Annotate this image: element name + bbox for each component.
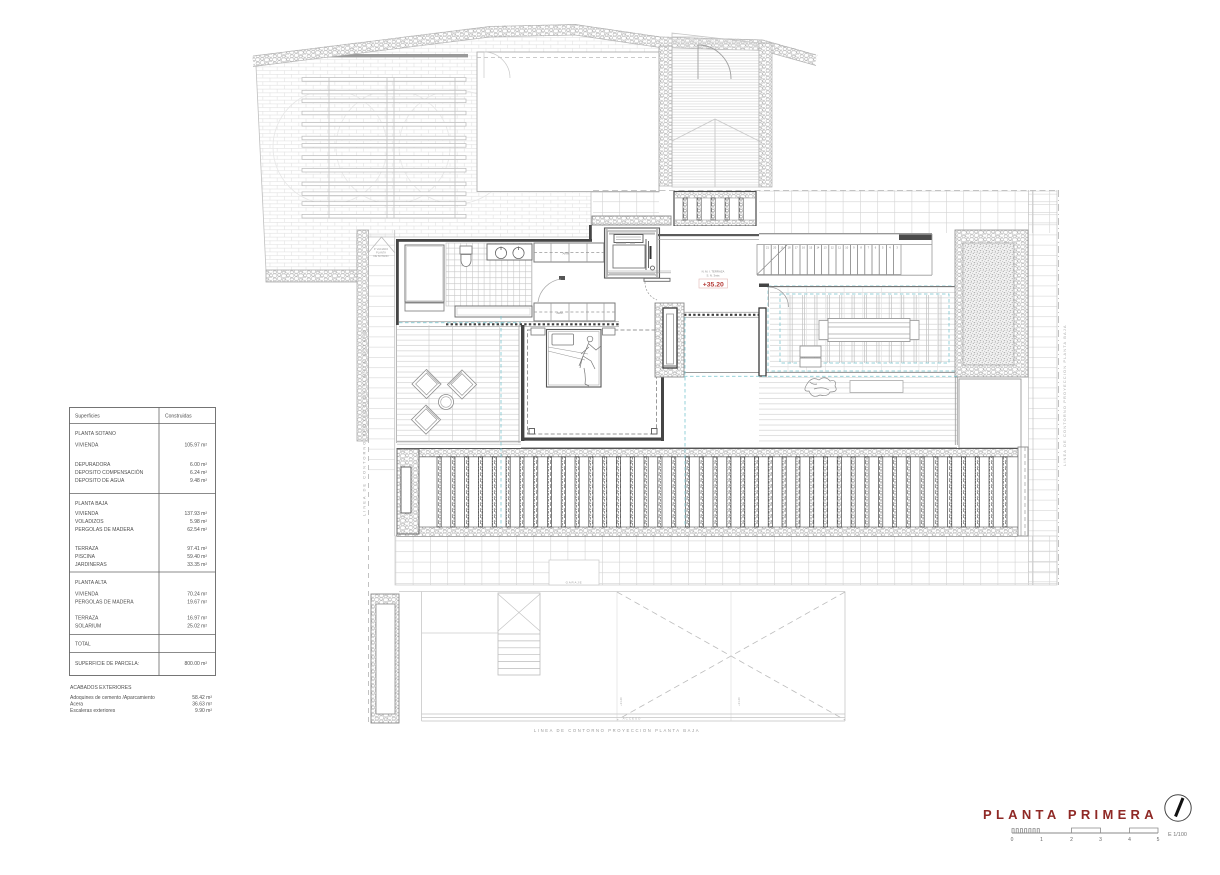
svg-text:PERGOLAS DE MADERA: PERGOLAS DE MADERA [75, 600, 134, 606]
svg-text:Superficies: Superficies [75, 414, 100, 420]
svg-text:59.40 m²: 59.40 m² [187, 554, 207, 560]
svg-text:SOLARIUM: SOLARIUM [75, 624, 101, 630]
svg-text:33.35 m²: 33.35 m² [187, 562, 207, 568]
svg-text:16.97 m²: 16.97 m² [187, 616, 207, 622]
svg-text:105.97 m²: 105.97 m² [184, 443, 207, 449]
svg-text:3: 3 [1099, 837, 1102, 843]
svg-text:Adoquines de cemento /Aparcami: Adoquines de cemento /Aparcamiento [70, 695, 155, 701]
svg-text:19.67 m²: 19.67 m² [187, 600, 207, 606]
svg-text:+31.40: +31.40 [737, 697, 741, 706]
svg-text:TERRAZA: TERRAZA [75, 616, 99, 622]
svg-text:ARM.: ARM. [563, 252, 570, 256]
svg-text:DEPOSITO COMPENSACIÓN: DEPOSITO COMPENSACIÓN [75, 469, 144, 476]
svg-text:+35.20: +35.20 [703, 281, 724, 288]
svg-text:Escaleras exteriores: Escaleras exteriores [70, 708, 116, 714]
svg-text:PLANTA ALTA: PLANTA ALTA [75, 580, 107, 586]
svg-text:0: 0 [1011, 837, 1014, 843]
svg-text:6.24 m²: 6.24 m² [190, 470, 207, 476]
svg-text:P. VACIADO: P. VACIADO [374, 247, 388, 251]
svg-text:PLANTA BAJA: PLANTA BAJA [75, 501, 108, 507]
svg-text:Acera: Acera [70, 702, 83, 708]
svg-text:70.24 m²: 70.24 m² [187, 592, 207, 598]
svg-text:800.00 m²: 800.00 m² [184, 661, 207, 667]
svg-text:PLANTA SOTANO: PLANTA SOTANO [75, 431, 116, 437]
svg-text:JARDINERAS: JARDINERAS [75, 562, 107, 568]
svg-text:1: 1 [1040, 837, 1043, 843]
svg-text:LINEA DE CONTORNO PROYECCION P: LINEA DE CONTORNO PROYECCION PLANTA BAJA [534, 728, 700, 733]
svg-text:VOLADIZOS: VOLADIZOS [75, 519, 104, 525]
svg-text:9.48 m²: 9.48 m² [190, 478, 207, 484]
svg-text:2: 2 [1070, 837, 1073, 843]
svg-text:S. N. 3mts: S. N. 3mts [706, 274, 720, 278]
svg-text:97.41 m²: 97.41 m² [187, 546, 207, 552]
svg-text:DE SOTANO: DE SOTANO [373, 254, 388, 258]
svg-text:PLANTA: PLANTA [376, 251, 386, 255]
svg-text:5.98 m²: 5.98 m² [190, 519, 207, 525]
svg-text:PISCINA: PISCINA [75, 554, 96, 560]
svg-text:DEPURADORA: DEPURADORA [75, 462, 111, 468]
svg-text:VIVIENDA: VIVIENDA [75, 511, 99, 517]
svg-text:E 1/100: E 1/100 [1168, 832, 1187, 838]
svg-text:4: 4 [1128, 837, 1131, 843]
svg-text:5: 5 [1157, 837, 1160, 843]
svg-text:PLANTA PRIMERA: PLANTA PRIMERA [983, 807, 1159, 822]
svg-text:9.90 m²: 9.90 m² [195, 708, 212, 714]
svg-text:ACABADOS EXTERIORES: ACABADOS EXTERIORES [70, 685, 132, 691]
svg-text:GARAJE: GARAJE [566, 581, 583, 585]
svg-text:TOTAL: TOTAL [75, 642, 91, 648]
svg-text:DEPOSITO DE AGUA: DEPOSITO DE AGUA [75, 478, 125, 484]
svg-text:62.54 m²: 62.54 m² [187, 527, 207, 533]
svg-text:LINEA DE CONTORNO PROYECCION P: LINEA DE CONTORNO PROYECCION PLANTA SOTA… [362, 328, 367, 516]
svg-text:ARM.: ARM. [557, 311, 564, 315]
svg-text:137.93 m²: 137.93 m² [184, 511, 207, 517]
svg-text:+31.40: +31.40 [619, 697, 623, 706]
svg-text:58.42 m²: 58.42 m² [192, 695, 212, 701]
svg-text:TERRAZA: TERRAZA [75, 546, 99, 552]
svg-text:6.00 m²: 6.00 m² [190, 462, 207, 468]
svg-text:25.02 m²: 25.02 m² [187, 624, 207, 630]
svg-text:ACCESO: ACCESO [623, 717, 642, 721]
svg-text:VIVIENDA: VIVIENDA [75, 443, 99, 449]
svg-text:36.63 m²: 36.63 m² [192, 702, 212, 708]
svg-text:LINEA DE CONTORNO PROYECCION P: LINEA DE CONTORNO PROYECCION PLANTA BAJA [1062, 324, 1067, 466]
svg-text:VIVIENDA: VIVIENDA [75, 592, 99, 598]
svg-text:SUPERFICIE DE PARCELA:: SUPERFICIE DE PARCELA: [75, 661, 139, 667]
svg-text:PERGOLAS DE MADERA: PERGOLAS DE MADERA [75, 527, 134, 533]
svg-text:Construidas: Construidas [165, 414, 192, 420]
